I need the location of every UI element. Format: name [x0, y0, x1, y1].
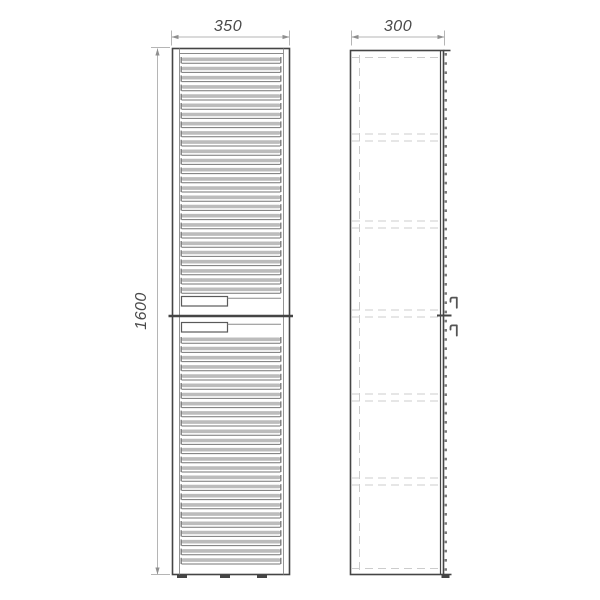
side-view	[351, 51, 457, 579]
side-foot-mark	[442, 575, 450, 578]
front-view	[169, 49, 294, 579]
front-feet	[177, 575, 267, 578]
arrowhead-icon	[283, 35, 290, 39]
side-handle-lower-icon	[451, 325, 457, 335]
side-outer-box	[351, 51, 444, 575]
dim-width: 350	[172, 18, 290, 46]
arrowhead-icon	[155, 568, 159, 575]
dim-height-label: 1600	[133, 292, 150, 330]
arrowhead-icon	[438, 35, 445, 39]
dim-height: 1600	[133, 48, 170, 575]
arrowhead-icon	[155, 49, 159, 56]
drawing-canvas: 350 300 1600	[0, 0, 600, 600]
handle-recess-rect	[182, 323, 228, 333]
foot-mark	[257, 575, 267, 578]
arrowhead-icon	[352, 35, 359, 39]
foot-mark	[220, 575, 230, 578]
handle-recess-rect	[182, 297, 228, 307]
foot-mark	[177, 575, 187, 578]
dim-depth-label: 300	[384, 18, 412, 35]
side-handle-upper-icon	[451, 298, 457, 308]
arrowhead-icon	[172, 35, 179, 39]
dim-width-label: 350	[214, 18, 242, 35]
dim-depth: 300	[352, 18, 445, 46]
